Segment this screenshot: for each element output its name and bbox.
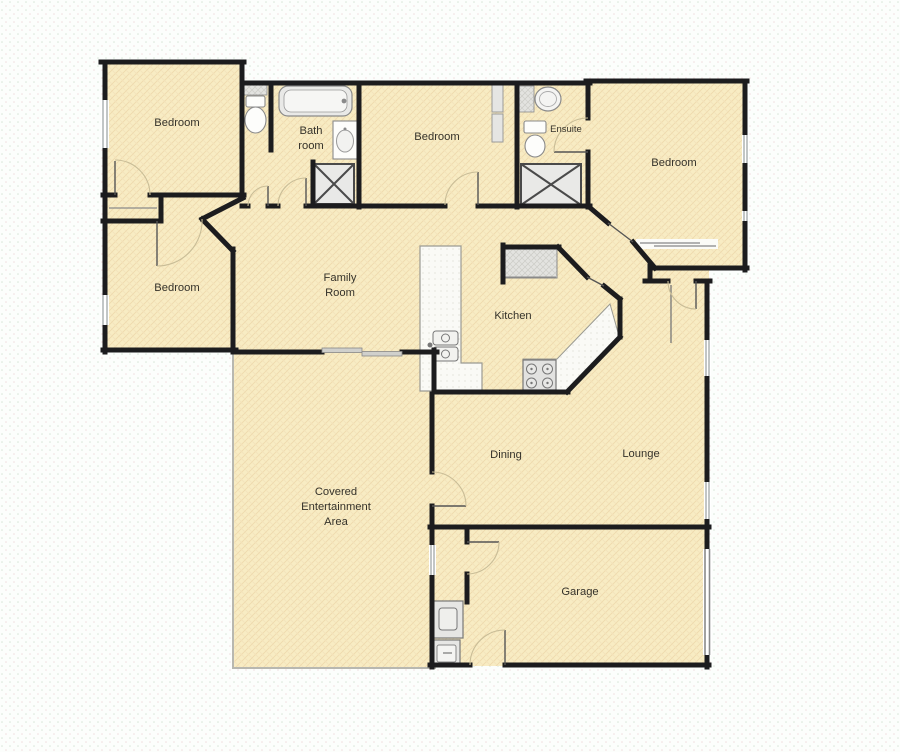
toilet-icon — [245, 96, 266, 133]
label-family-line2: Room — [325, 287, 355, 299]
ensuite-toilet-icon — [524, 121, 546, 157]
label-dining: Dining — [490, 449, 522, 461]
window-bedroom-tl — [101, 100, 109, 148]
label-ensuite: Ensuite — [550, 124, 582, 135]
washing-machine-icon — [433, 601, 463, 638]
label-covered-line3: Area — [324, 516, 348, 528]
window-lounge — [704, 482, 711, 519]
label-covered-line2: Entertainment — [301, 501, 372, 513]
bathroom-shower-icon — [314, 164, 354, 204]
floor-plan: Bedroom Bath room Bedroom Ensuite Bedroo… — [0, 0, 900, 752]
ensuite-basin-icon — [535, 87, 561, 111]
wc-window-shelf — [244, 85, 267, 95]
window-laundry — [429, 545, 436, 575]
label-bathroom-line2: room — [298, 140, 324, 152]
laundry-fixtures — [433, 601, 463, 666]
window-entry — [704, 340, 711, 376]
label-garage: Garage — [561, 586, 598, 598]
label-bedroom-top-middle: Bedroom — [414, 131, 459, 143]
label-covered-line1: Covered — [315, 486, 357, 498]
label-bathroom-line1: Bath — [299, 125, 322, 137]
label-family-line1: Family — [324, 272, 357, 284]
label-lounge: Lounge — [622, 448, 659, 460]
label-kitchen: Kitchen — [494, 310, 531, 322]
window-bedroom-tr-lower — [742, 211, 749, 221]
window-bedroom-tr-upper — [742, 135, 749, 163]
bathtub-icon — [279, 86, 352, 116]
label-bedroom-top-left: Bedroom — [154, 117, 199, 129]
ensuite-shower-icon — [521, 164, 581, 205]
laundry-tub-icon — [433, 640, 460, 666]
label-bedroom-top-right: Bedroom — [651, 157, 696, 169]
bedroom2-robe — [492, 85, 503, 142]
stove-cooktop-icon — [523, 360, 556, 390]
floor-plan-page: Bedroom Bath room Bedroom Ensuite Bedroo… — [0, 0, 900, 752]
bedroom-right-shelf — [636, 239, 718, 249]
ensuite-vanity — [519, 86, 534, 112]
label-bedroom-left: Bedroom — [154, 282, 199, 294]
window-bedroom-left — [101, 295, 109, 325]
floor-bedroom-top-left — [105, 62, 242, 196]
bathroom-basin-icon — [333, 121, 358, 159]
pantry — [505, 249, 557, 278]
